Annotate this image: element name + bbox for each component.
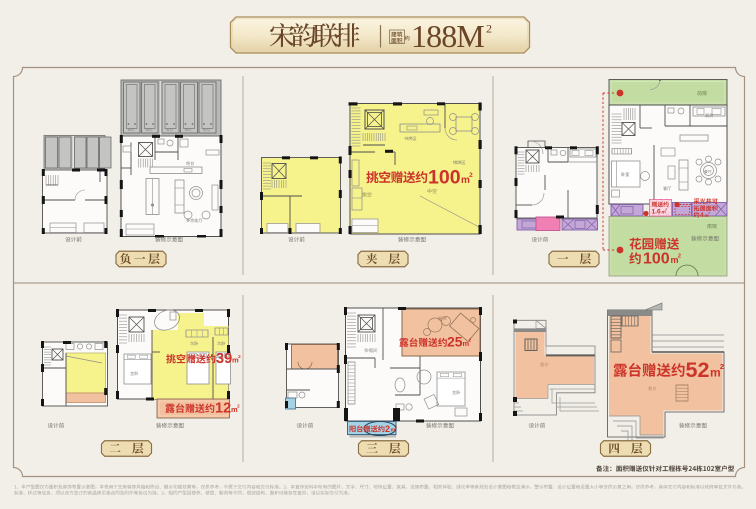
- svg-text:2: 2: [469, 337, 472, 342]
- svg-text:1.6: 1.6: [652, 209, 661, 216]
- svg-text:52: 52: [686, 358, 710, 382]
- svg-text:2: 2: [469, 172, 473, 179]
- svg-text:2: 2: [720, 362, 724, 371]
- svg-text:2: 2: [238, 354, 241, 359]
- svg-text:2: 2: [237, 403, 240, 408]
- svg-text:12: 12: [215, 401, 231, 417]
- svg-text:100: 100: [643, 251, 670, 268]
- svg-text:2: 2: [486, 22, 492, 36]
- svg-text:2: 2: [385, 424, 390, 434]
- svg-text:100: 100: [428, 167, 461, 189]
- svg-text:25: 25: [447, 334, 463, 350]
- svg-text:4: 4: [700, 212, 704, 219]
- svg-text:188M: 188M: [411, 18, 484, 54]
- svg-text:39: 39: [216, 351, 232, 367]
- svg-text:2: 2: [678, 253, 681, 259]
- svg-text:2: 2: [395, 425, 397, 429]
